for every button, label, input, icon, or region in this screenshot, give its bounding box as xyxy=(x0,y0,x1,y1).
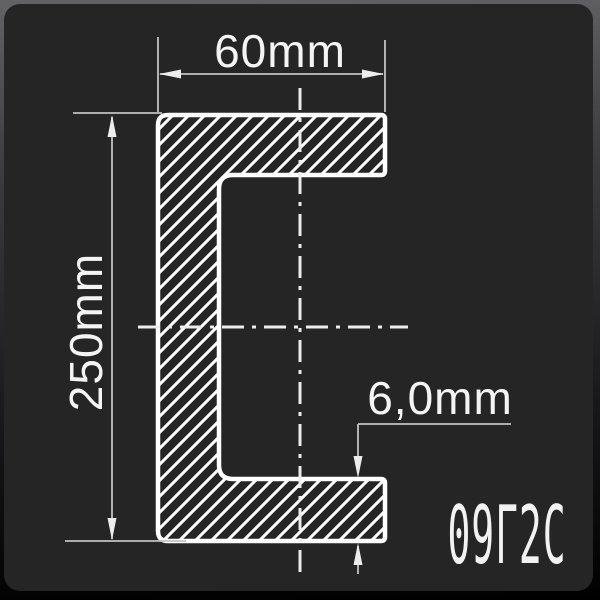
width-dimension-label: 60mm xyxy=(214,25,346,77)
dimension-arrow-right-icon xyxy=(362,70,384,79)
dimension-arrow-down-icon xyxy=(108,518,117,540)
dimension-arrow-left-icon xyxy=(159,70,181,79)
channel-profile-drawing: 60mm 250mm 6,0mm 09Г2С xyxy=(0,0,600,600)
steel-grade-label: 09Г2С xyxy=(447,489,566,582)
thickness-arrow-up-icon xyxy=(354,543,363,565)
thickness-arrow-down-icon xyxy=(354,456,363,478)
image-frame: 60mm 250mm 6,0mm 09Г2С xyxy=(0,0,600,600)
thickness-dimension-label: 6,0mm xyxy=(367,372,513,424)
dimension-arrow-up-icon xyxy=(108,115,117,137)
width-dimension: 60mm xyxy=(158,25,385,112)
height-dimension-label: 250mm xyxy=(60,253,112,411)
